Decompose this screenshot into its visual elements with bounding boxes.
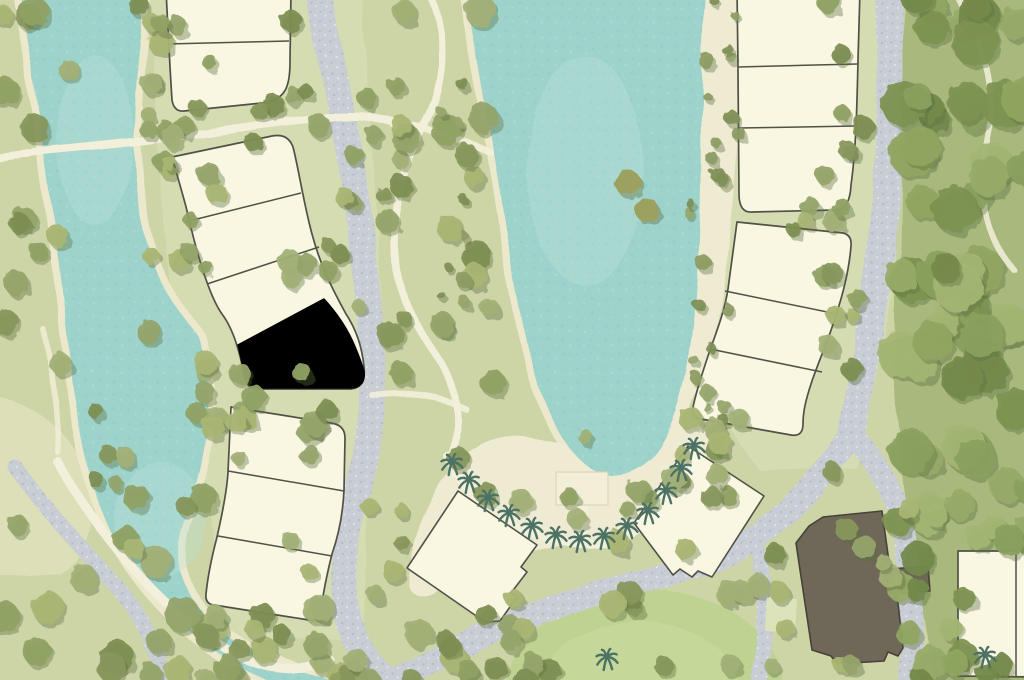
tree <box>832 198 851 217</box>
tree <box>730 409 750 429</box>
tree <box>705 151 718 164</box>
palm-center <box>467 478 471 482</box>
palm-center <box>983 653 987 657</box>
palm-center <box>664 489 668 493</box>
tree <box>23 638 51 666</box>
tree <box>330 244 349 263</box>
tree <box>88 404 103 419</box>
tree <box>709 431 732 454</box>
tree <box>383 561 405 583</box>
tree <box>345 146 364 165</box>
tree <box>201 415 225 439</box>
tree <box>700 385 716 401</box>
tree <box>335 187 354 206</box>
tree <box>175 496 194 515</box>
tree <box>194 623 219 648</box>
tree <box>475 604 497 626</box>
tree <box>69 563 97 591</box>
tree <box>694 300 706 312</box>
tree <box>931 253 961 283</box>
tree <box>21 114 50 143</box>
tree <box>142 247 159 264</box>
tree <box>162 125 185 148</box>
tree <box>469 103 499 133</box>
tree <box>152 15 170 33</box>
tree <box>822 462 841 481</box>
tree <box>108 476 122 490</box>
palm-center <box>605 655 609 659</box>
tree <box>842 656 860 674</box>
tree <box>352 299 366 313</box>
island-tree <box>635 198 659 222</box>
tree <box>599 590 626 617</box>
tree <box>59 60 80 81</box>
tree <box>695 255 711 271</box>
tree <box>746 573 769 596</box>
tree <box>797 212 814 229</box>
tree <box>387 77 405 95</box>
tree <box>189 99 207 117</box>
tree <box>834 105 850 121</box>
tree <box>272 625 291 644</box>
tree <box>458 194 468 204</box>
tree <box>959 312 1004 357</box>
tree <box>718 400 732 414</box>
tree <box>505 590 524 609</box>
tree <box>404 619 433 648</box>
palm-center <box>692 444 696 448</box>
tree <box>163 156 177 170</box>
tree <box>392 0 416 24</box>
tree <box>198 259 212 273</box>
site-plan-canvas <box>0 0 1024 680</box>
tree <box>875 554 891 570</box>
tree <box>939 617 962 640</box>
tree <box>818 335 838 355</box>
tree <box>4 270 29 295</box>
tree <box>124 538 145 559</box>
tree <box>9 213 30 234</box>
tree <box>146 629 171 654</box>
palm-center <box>450 460 454 464</box>
tree <box>245 619 264 638</box>
tree <box>137 320 161 344</box>
tree <box>942 650 968 676</box>
tree <box>901 541 935 575</box>
palm-center <box>530 524 534 528</box>
tree <box>701 486 722 507</box>
tree <box>884 259 918 293</box>
tree <box>123 484 149 510</box>
tree <box>480 370 506 396</box>
tree <box>678 406 702 430</box>
water-highlight <box>527 55 643 285</box>
tree <box>764 658 779 673</box>
tree <box>776 619 795 638</box>
tree <box>841 358 863 380</box>
tree <box>460 232 469 241</box>
tree <box>183 213 198 228</box>
tree <box>395 536 410 551</box>
palm-center <box>646 509 650 513</box>
palm-center <box>486 496 490 500</box>
tree <box>8 515 28 535</box>
tree <box>763 543 786 566</box>
tree <box>686 199 695 208</box>
tree <box>299 444 319 464</box>
tree <box>140 72 162 94</box>
tree <box>50 353 72 375</box>
palm-center <box>554 533 558 537</box>
tree <box>231 450 246 465</box>
tree <box>731 11 740 20</box>
tree <box>838 141 856 159</box>
tree <box>31 591 64 624</box>
tree <box>390 174 413 197</box>
tree <box>298 84 313 99</box>
parcel-group-northwest-outline[interactable] <box>166 0 291 111</box>
tree <box>627 478 651 502</box>
tree <box>689 371 702 384</box>
tree <box>455 143 479 167</box>
tree <box>698 52 714 68</box>
tree <box>706 464 728 486</box>
tree <box>953 588 976 611</box>
island-tree <box>615 170 641 196</box>
tree <box>377 321 404 348</box>
tree <box>194 351 217 374</box>
site-plan-map <box>0 0 1024 680</box>
tree <box>307 114 330 137</box>
tree <box>437 107 446 116</box>
tree <box>710 167 725 182</box>
tree <box>956 439 996 479</box>
tree <box>195 383 216 404</box>
tree <box>458 296 470 308</box>
tree <box>500 630 522 652</box>
tree <box>455 77 467 89</box>
tree <box>366 584 384 602</box>
tree <box>47 225 69 247</box>
tree <box>250 102 267 119</box>
tree <box>140 106 155 121</box>
tree <box>905 83 932 110</box>
tree <box>969 157 1009 197</box>
tree <box>906 579 928 601</box>
tree <box>676 539 697 560</box>
tree <box>375 187 391 203</box>
tree <box>480 298 499 317</box>
tree <box>301 564 318 581</box>
tree <box>925 504 948 527</box>
tree <box>831 44 850 63</box>
tree <box>390 362 413 385</box>
tree <box>769 582 789 602</box>
tree <box>711 138 721 148</box>
tree <box>344 648 367 671</box>
tree <box>559 488 578 507</box>
tree <box>848 289 867 308</box>
tree <box>280 9 302 31</box>
tree <box>229 362 251 384</box>
tree <box>390 115 411 136</box>
tree <box>815 165 834 184</box>
tree <box>577 429 591 443</box>
tree <box>932 186 978 232</box>
tree <box>941 357 983 399</box>
tree <box>952 19 998 65</box>
tree <box>361 498 378 515</box>
tree <box>722 304 735 317</box>
palm-center <box>602 534 606 538</box>
tree <box>309 594 335 620</box>
tree <box>509 489 532 512</box>
tree <box>435 317 455 337</box>
tree <box>655 657 674 676</box>
tree <box>895 620 920 645</box>
tree <box>994 525 1024 556</box>
tree <box>244 133 263 152</box>
tree <box>688 355 698 365</box>
tree <box>455 272 471 288</box>
tree <box>116 448 136 468</box>
tree <box>900 126 941 167</box>
tree <box>455 118 463 126</box>
tree <box>484 656 507 679</box>
tree <box>439 636 461 658</box>
tree <box>723 110 738 125</box>
palm-center <box>578 537 582 541</box>
tree <box>292 362 311 381</box>
tree <box>365 126 383 144</box>
tree <box>619 500 635 516</box>
tree <box>437 215 464 242</box>
tree <box>164 596 199 631</box>
tree <box>436 290 444 298</box>
tree <box>704 93 713 102</box>
tree <box>899 501 918 520</box>
tree <box>720 655 741 676</box>
tree <box>888 429 933 474</box>
tree <box>721 43 732 54</box>
palm-center <box>507 511 511 515</box>
tree <box>281 267 301 287</box>
tree <box>851 116 874 139</box>
tree <box>912 321 952 361</box>
parcel-group-northwest[interactable] <box>166 0 291 111</box>
tree <box>357 88 377 108</box>
tree <box>197 162 220 185</box>
palm-center <box>625 524 629 528</box>
tree <box>242 385 266 409</box>
tree <box>304 632 330 658</box>
tree <box>948 82 987 121</box>
tree <box>88 472 104 488</box>
tree <box>853 536 876 559</box>
tree <box>319 261 339 281</box>
tree <box>98 445 117 464</box>
tree <box>394 503 408 517</box>
tree <box>29 242 48 261</box>
tree <box>567 509 587 529</box>
tree <box>226 411 247 432</box>
tree <box>826 305 845 324</box>
tree <box>206 183 227 204</box>
tree <box>375 209 399 233</box>
tree <box>706 343 716 353</box>
tree <box>316 400 338 422</box>
tree <box>140 121 157 138</box>
tree <box>202 55 217 70</box>
tree <box>821 263 843 285</box>
tree <box>181 243 198 260</box>
palm-center <box>679 466 683 470</box>
tree <box>444 263 453 272</box>
tree <box>836 519 858 541</box>
tree <box>281 531 299 549</box>
